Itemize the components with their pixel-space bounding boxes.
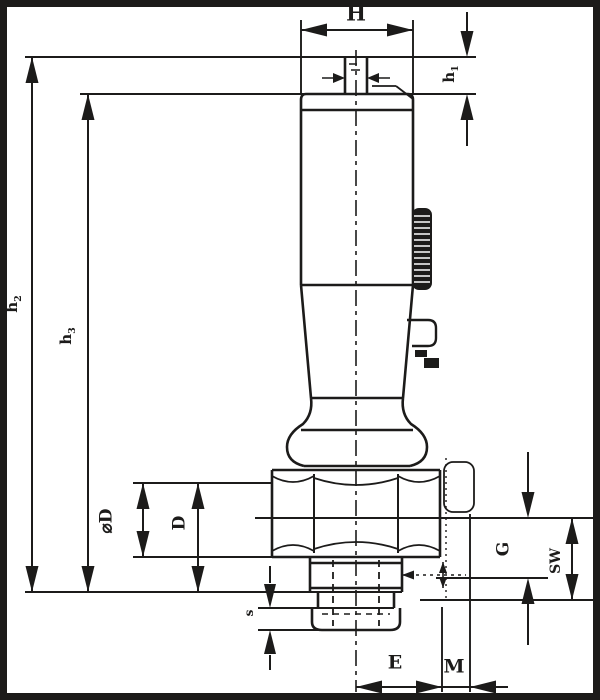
label-s: s [243, 610, 255, 617]
wire-clip [407, 320, 439, 368]
label-M: M [443, 658, 464, 677]
label-E: E [388, 654, 402, 673]
label-SW: SW [549, 548, 563, 574]
part-outline [272, 57, 474, 630]
label-h2: h2 [5, 295, 23, 312]
knurl-band [412, 208, 432, 290]
extension-lines [25, 20, 596, 692]
label-G: G [496, 542, 513, 557]
label-h3: h3 [59, 327, 77, 344]
drawing-canvas [0, 0, 600, 700]
dimension-drawing: H h1 h2 h3 ⌀D D G SW s E M [0, 0, 600, 700]
label-h1: h1 [442, 65, 460, 82]
label-D: D [172, 516, 189, 531]
label-dia-D: ⌀D [99, 509, 116, 534]
label-H: H [346, 3, 366, 24]
